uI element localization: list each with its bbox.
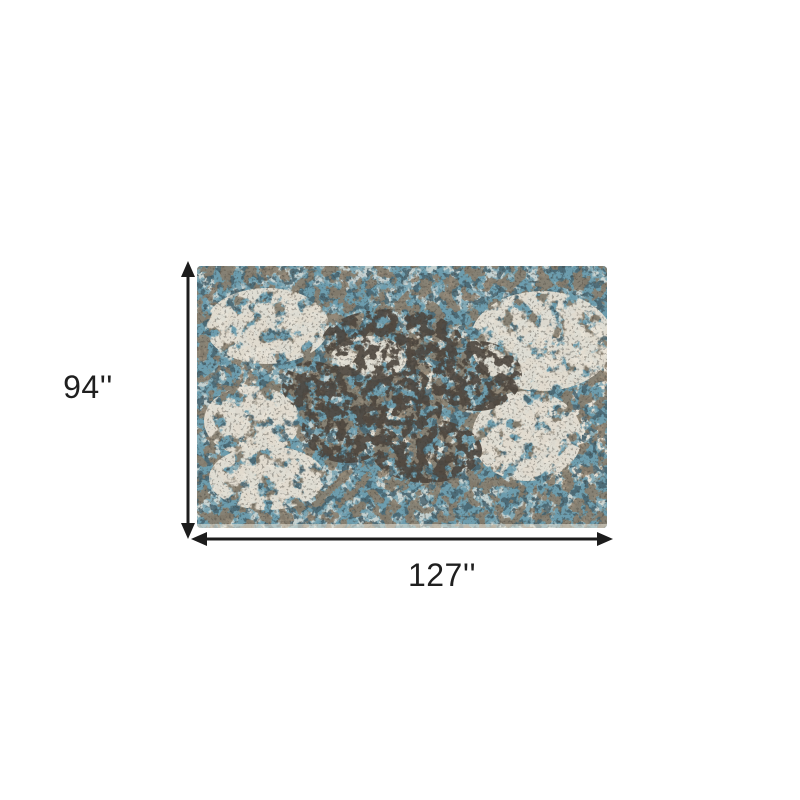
- product-dimension-diagram: 94'' 127'': [0, 0, 800, 800]
- width-dimension-arrow: [191, 532, 613, 546]
- rug-pattern: [197, 266, 607, 528]
- arrowhead-up-icon: [181, 261, 195, 277]
- arrowhead-down-icon: [181, 523, 195, 539]
- width-dimension-label: 127'': [392, 559, 492, 591]
- height-dimension-label: 94'': [38, 371, 138, 403]
- height-dimension-arrow: [181, 261, 195, 539]
- arrowhead-left-icon: [191, 532, 207, 546]
- rug-image: [197, 266, 607, 528]
- arrowhead-right-icon: [597, 532, 613, 546]
